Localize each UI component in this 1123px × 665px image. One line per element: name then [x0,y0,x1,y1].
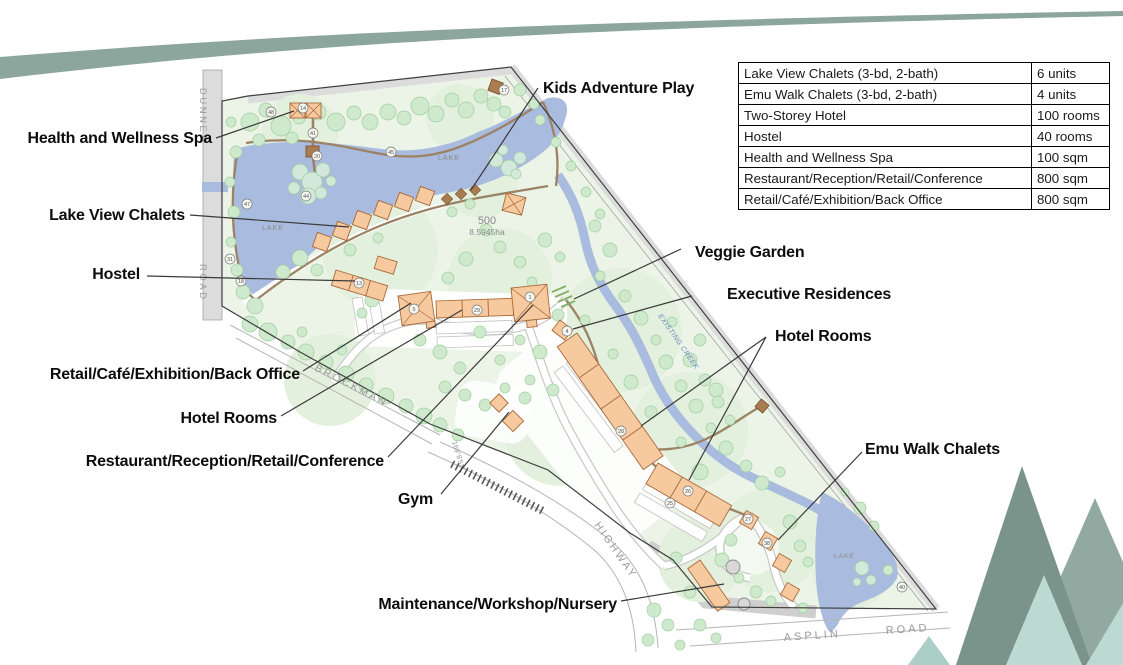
tree-icon [734,573,744,583]
plot-marker-number: 4 [565,329,568,335]
tree-icon [692,464,708,480]
facility-value: 800 sqm [1032,189,1110,210]
tree-icon [373,233,383,243]
tree-icon [581,187,591,197]
tree-icon [675,380,687,392]
tree-icon [362,114,378,130]
label-kids-adventure-play: Kids Adventure Play [543,79,694,98]
tree-icon [433,345,447,359]
tree-icon [725,415,735,425]
plot-marker: 13 [354,278,364,288]
label-hotel-rooms-right: Hotel Rooms [775,327,871,346]
label-executive-residences: Executive Residences [727,285,891,304]
tree-icon [311,264,323,276]
tree-icon [535,115,545,125]
tree-icon [242,316,258,332]
tree-icon [226,237,236,247]
facility-table: Lake View Chalets (3-bd, 2-bath)6 unitsE… [738,62,1110,210]
tree-icon [226,117,236,127]
facility-name: Hostel [739,126,1032,147]
tree-icon [647,603,661,617]
tree-icon [766,596,776,606]
tree-icon [603,243,617,257]
tree-icon [555,252,565,262]
tree-icon [253,134,265,146]
tree-icon [474,326,486,338]
tree-icon [288,182,300,194]
tree-icon [292,250,308,266]
tree-icon [883,565,893,575]
plot-marker: 48 [266,107,276,117]
facility-row: Two-Storey Hotel100 rooms [739,105,1110,126]
lot-area-label: 8.5945ha [469,227,505,237]
tree-icon [533,345,547,359]
plot-marker: 38 [762,538,772,548]
plot-marker-number: 40 [899,585,905,591]
tree-icon [624,375,638,389]
tree-icon [853,578,861,586]
tree-icon [515,335,525,345]
tree-icon [511,169,521,179]
tree-icon [642,634,654,646]
tree-icon [711,633,721,643]
facility-table-body: Lake View Chalets (3-bd, 2-bath)6 unitsE… [739,63,1110,210]
tree-icon [442,272,454,284]
tree-icon [297,327,307,337]
facility-name: Lake View Chalets (3-bd, 2-bath) [739,63,1032,84]
tree-icon [514,84,526,96]
lake-top-label: LAKE [262,225,284,232]
plot-marker: 29 [472,305,482,315]
facility-name: Health and Wellness Spa [739,147,1032,168]
tree-icon [547,384,559,396]
tree-icon [344,244,356,256]
facility-row: Lake View Chalets (3-bd, 2-bath)6 units [739,63,1110,84]
tree-icon [414,334,426,346]
tree-icon [439,381,451,393]
tree-icon [276,265,290,279]
plot-marker: 45 [386,147,396,157]
label-hotel-rooms-left: Hotel Rooms [181,409,277,428]
tree-icon [725,534,737,546]
boundary-bearing-label: 169°8'52" [450,440,467,472]
tree-icon [247,298,263,314]
tree-icon [866,575,876,585]
road-asplin-label: ASPLIN [783,628,841,644]
tree-icon [709,383,723,397]
plot-marker-number: 26 [685,489,691,495]
tree-icon [651,335,661,345]
tree-icon [712,396,724,408]
lot-number-label: 500 [478,215,496,227]
tree-icon [740,460,752,472]
plot-marker: 18 [236,276,246,286]
tree-icon [551,137,561,147]
tree-icon [855,561,869,575]
plot-marker-number: 27 [745,517,751,523]
plot-marker: 26 [683,486,693,496]
tree-icon [755,476,769,490]
facility-value: 40 rooms [1032,126,1110,147]
tree-icon [494,241,506,253]
tree-icon [326,176,336,186]
label-veggie-garden: Veggie Garden [695,243,804,262]
tree-icon [519,392,531,404]
facility-row: Restaurant/Reception/Retail/Conference80… [739,168,1110,189]
tree-icon [357,308,367,318]
tree-icon [474,89,488,103]
facility-row: Emu Walk Chalets (3-bd, 2-bath)4 units [739,84,1110,105]
facility-value: 100 sqm [1032,147,1110,168]
facility-row: Health and Wellness Spa100 sqm [739,147,1110,168]
tree-icon [803,557,813,567]
facility-row: Hostel40 rooms [739,126,1110,147]
facility-row: Retail/Café/Exhibition/Back Office800 sq… [739,189,1110,210]
tree-icon [465,199,475,209]
tree-icon [225,177,235,187]
plot-marker: 44 [301,191,311,201]
label-lake-view-chalets: Lake View Chalets [49,206,185,225]
tree-icon [676,437,686,447]
facility-name: Restaurant/Reception/Retail/Conference [739,168,1032,189]
tree-icon [689,399,703,413]
tree-icon [236,285,250,299]
tree-icon [538,233,552,247]
plot-marker: 17 [499,85,509,95]
tree-icon [458,102,474,118]
plot-marker: 31 [225,254,235,264]
tree-icon [428,106,444,122]
tree-icon [447,207,457,217]
tree-icon [454,362,466,374]
plot-marker: 20 [312,151,322,161]
tree-icon [566,161,576,171]
tree-icon [675,640,685,650]
tree-small-icon [908,636,950,665]
plot-marker-number: 1 [528,295,531,301]
tree-icon [397,111,411,125]
tree-icon [495,355,505,365]
tree-icon [347,106,361,120]
plot-marker-number: 18 [238,279,244,285]
label-gym: Gym [398,490,433,509]
plot-marker-number: 44 [303,194,309,200]
road-asplin-road-label: ROAD [885,622,930,637]
tree-icon [794,540,806,552]
tree-icon [259,323,277,341]
tree-icon [580,315,590,325]
tree-icon [694,619,706,631]
tree-icon [719,441,733,455]
facility-name: Emu Walk Chalets (3-bd, 2-bath) [739,84,1032,105]
tree-icon [589,220,601,232]
plot-marker: 4 [562,326,572,336]
plot-marker-number: 20 [314,154,320,160]
plot-marker: 1 [525,292,535,302]
plot-marker-number: 25 [667,501,673,507]
plot-marker-number: 48 [268,110,274,116]
road-dunnet-road-label: ROAD [197,264,208,301]
plot-marker: 14 [298,103,308,113]
facility-name: Two-Storey Hotel [739,105,1032,126]
tree-icon [380,104,396,120]
plot-marker-number: 14 [300,106,306,112]
plot-marker-number: 41 [310,131,316,137]
label-restaurant: Restaurant/Reception/Retail/Conference [86,452,384,471]
tree-icon [500,383,510,393]
facility-value: 800 sqm [1032,168,1110,189]
tree-icon [525,375,535,385]
tree-icon [670,552,682,564]
tree-icon [608,349,618,359]
tree-icon [595,209,605,219]
label-retail-cafe: Retail/Café/Exhibition/Back Office [50,365,300,384]
tree-icon [459,389,471,401]
lake-top-label-2: LAKE [438,155,460,162]
plot-marker-number: 29 [474,308,480,314]
tree-icon [315,187,327,199]
tree-icon [750,586,762,598]
tree-icon [514,256,526,268]
tree-icon [662,619,674,631]
tree-icon [327,113,345,131]
plot-marker-number: 13 [356,281,362,287]
tree-icon [445,93,459,107]
tree-icon [694,334,706,346]
tree-icon [411,97,429,115]
tree-icon [499,106,511,118]
tree-icon [316,163,330,177]
tree-icon [479,399,491,411]
tree-icon [595,271,605,281]
facility-value: 4 units [1032,84,1110,105]
facility-name: Retail/Café/Exhibition/Back Office [739,189,1032,210]
plot-marker: 40 [897,582,907,592]
plot-marker-number: 38 [764,541,770,547]
plot-marker: 41 [308,128,318,138]
plot-marker-number: 47 [244,202,250,208]
tree-icon [619,290,631,302]
plot-marker-number: 5 [412,307,415,313]
plot-marker-number: 45 [388,150,394,156]
tree-icon [286,132,298,144]
tree-icon [684,586,696,598]
lake-bottom-label: LAKE [834,553,855,560]
page: DUNNET ROAD BROCKMAN HIGHWAY ASPLIN ROAD… [0,0,1123,665]
facility-value: 6 units [1032,63,1110,84]
tree-icon [231,264,243,276]
plot-marker: 25 [665,498,675,508]
tree-icon [459,252,473,266]
tree-icon [659,355,673,369]
culvert [202,182,228,192]
facility-value: 100 rooms [1032,105,1110,126]
label-health-wellness-spa: Health and Wellness Spa [28,129,213,148]
tree-icon [634,311,648,325]
label-maintenance: Maintenance/Workshop/Nursery [378,595,617,614]
plot-marker: 28 [616,426,626,436]
corner-trees-graphic [908,466,1123,665]
plot-marker: 47 [242,199,252,209]
tree-icon [416,408,432,424]
plot-marker: 5 [409,304,419,314]
plot-marker-number: 31 [227,257,233,263]
tree-icon [552,309,564,321]
label-hostel: Hostel [92,265,140,284]
plot-marker-number: 28 [618,429,624,435]
plot-marker-number: 17 [501,88,507,94]
label-emu-walk-chalets: Emu Walk Chalets [865,440,1000,459]
tree-icon [775,467,785,477]
tree-icon [271,116,291,136]
tree-icon [230,146,242,158]
tree-icon [514,152,526,164]
plot-marker: 27 [743,514,753,524]
tree-icon [487,97,501,111]
tree-icon [228,206,240,218]
